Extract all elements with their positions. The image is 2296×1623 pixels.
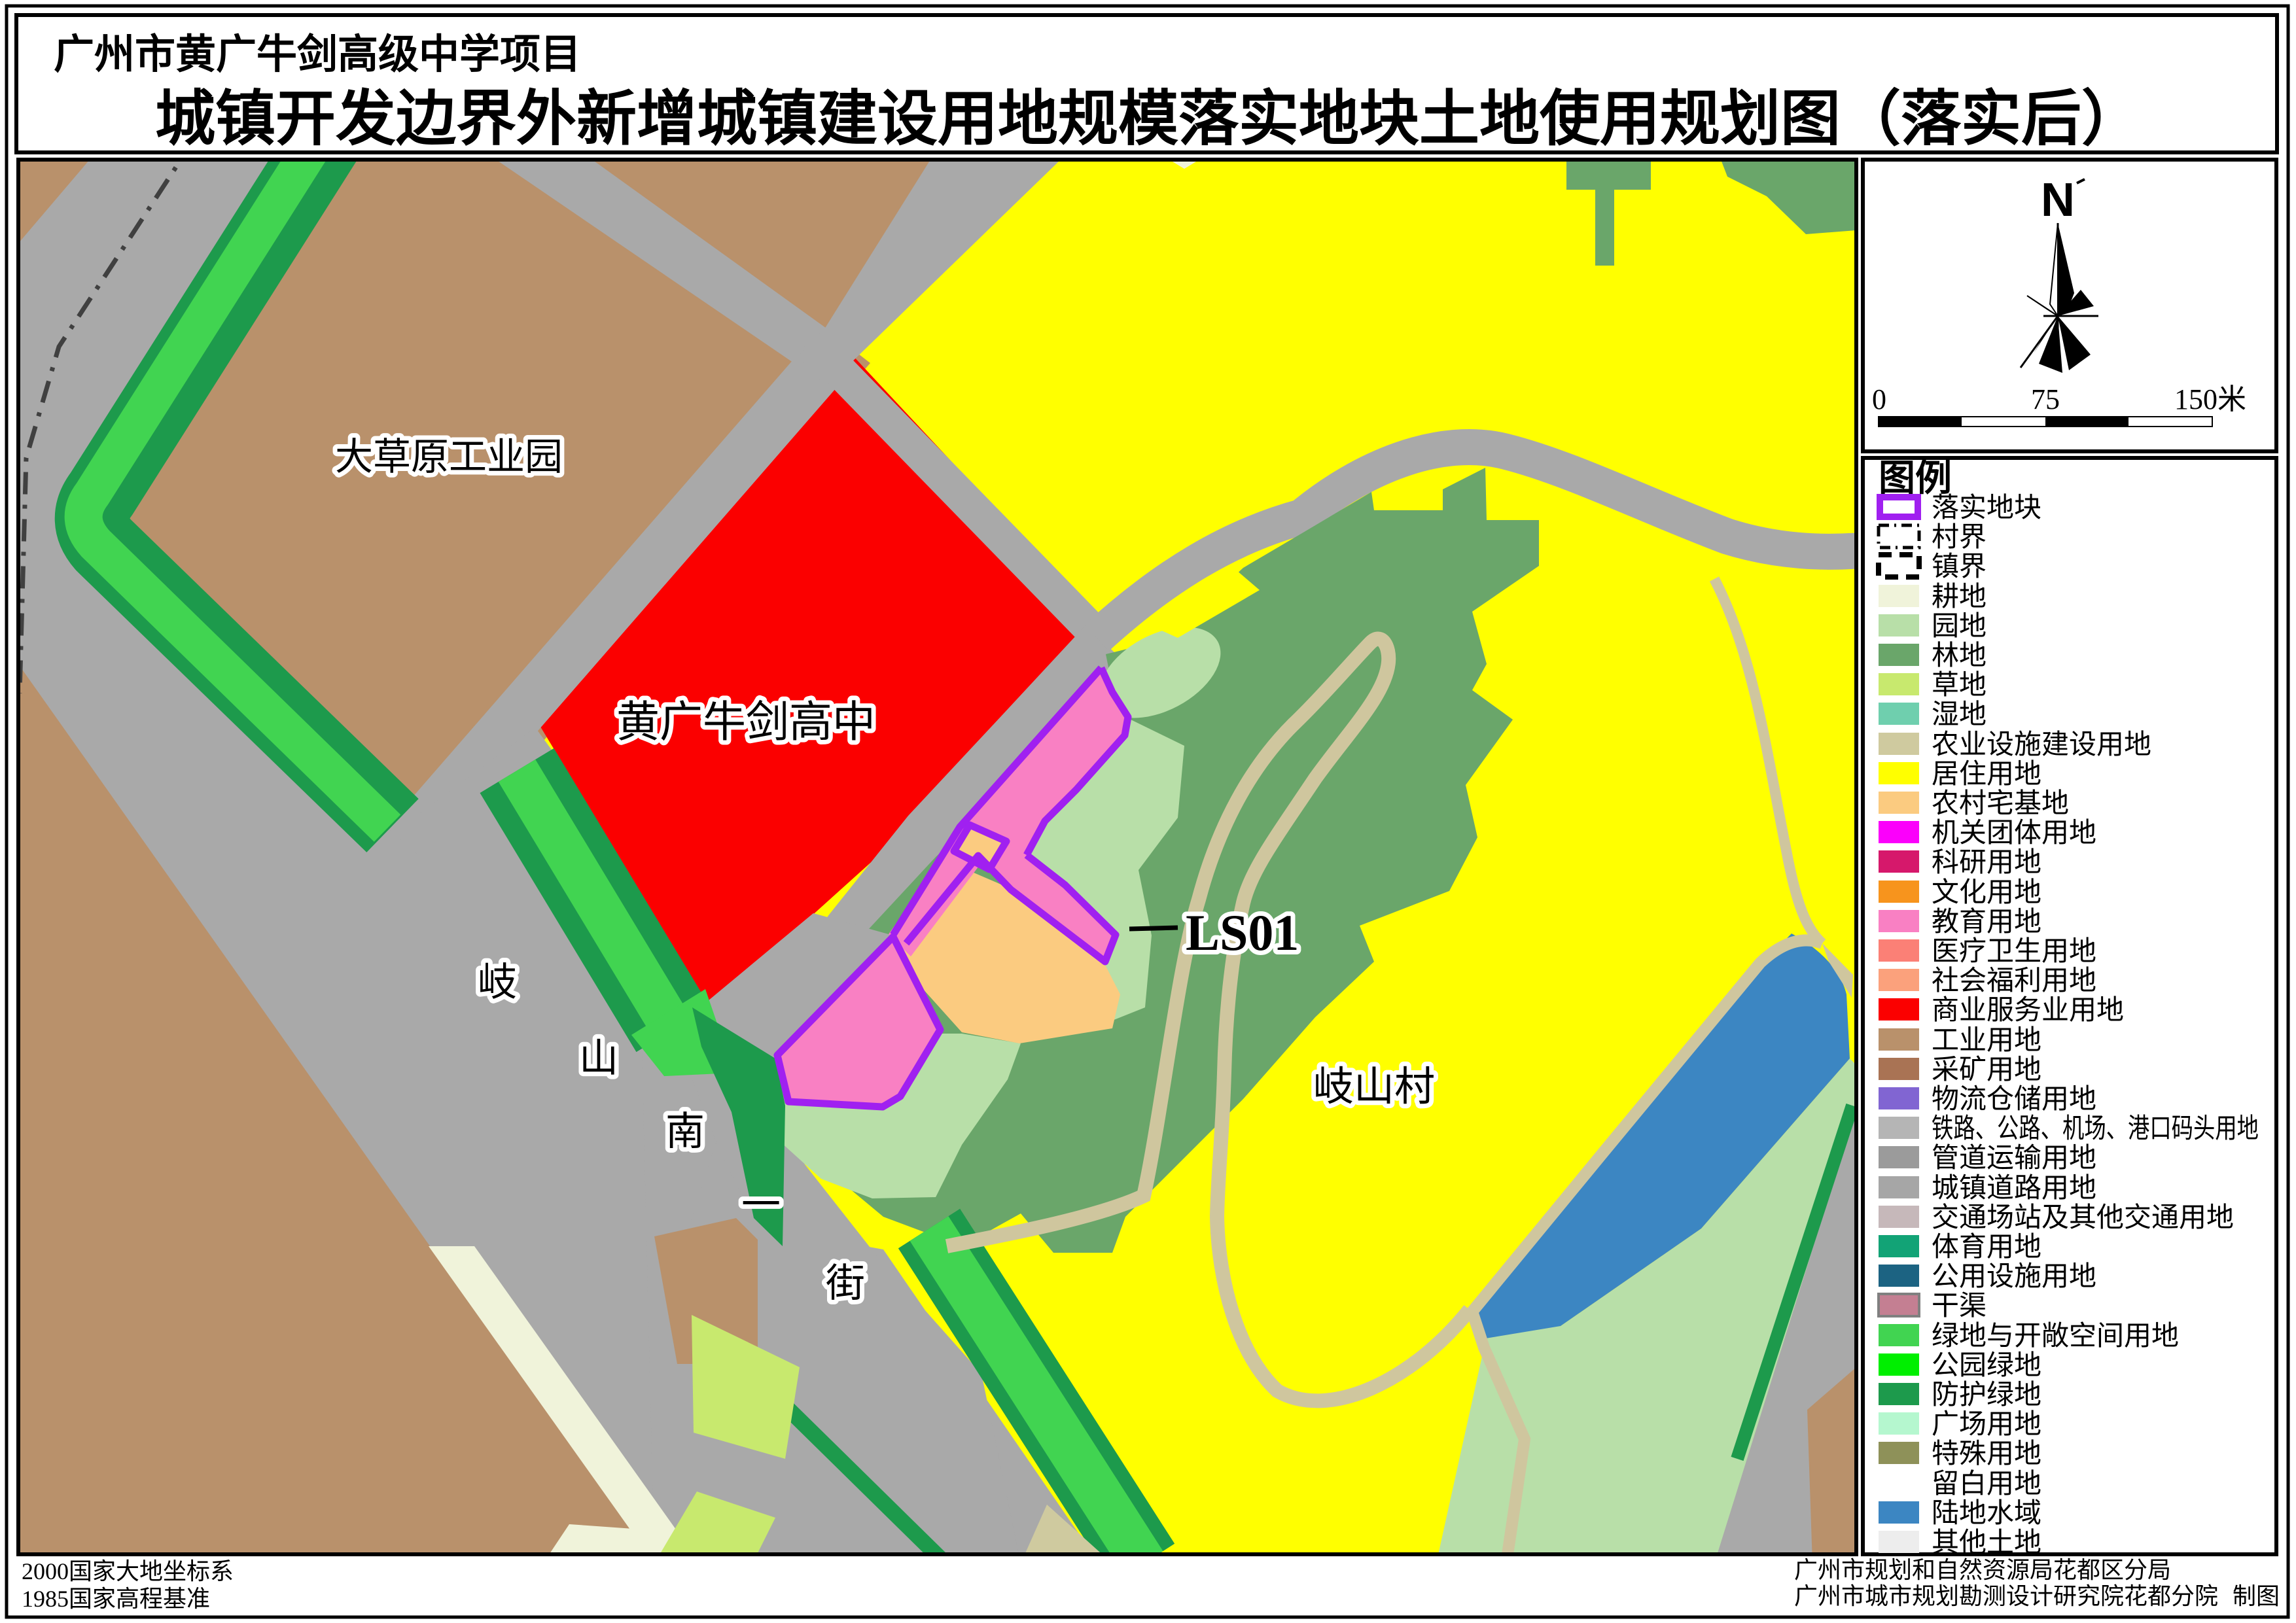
svg-text:城镇开发边界外新增城镇建设用地规模落实地块土地使用规划图（落: 城镇开发边界外新增城镇建设用地规模落实地块土地使用规划图（落实后） — [155, 86, 2142, 152]
svg-text:体育用地: 体育用地 — [1932, 1232, 2041, 1263]
svg-text:防护绿地: 防护绿地 — [1932, 1380, 2041, 1410]
svg-text:草地: 草地 — [1932, 671, 1987, 701]
svg-text:山: 山 — [579, 1037, 618, 1080]
svg-text:村界: 村界 — [1932, 523, 1987, 553]
svg-text:广场用地: 广场用地 — [1932, 1410, 2041, 1440]
svg-text:林地: 林地 — [1932, 641, 1987, 671]
svg-text:农业设施建设用地: 农业设施建设用地 — [1932, 730, 2151, 760]
svg-text:教育用地: 教育用地 — [1932, 907, 2041, 937]
svg-text:公用设施用地: 公用设施用地 — [1932, 1262, 2096, 1292]
svg-text:广州市城市规划勘测设计研究院花都分院: 广州市城市规划勘测设计研究院花都分院 — [1794, 1583, 2218, 1609]
svg-text:园地: 园地 — [1932, 612, 1987, 642]
svg-text:机关团体用地: 机关团体用地 — [1932, 818, 2096, 848]
svg-text:街: 街 — [826, 1262, 865, 1305]
svg-text:交通场站及其他交通用地: 交通场站及其他交通用地 — [1932, 1202, 2234, 1233]
svg-text:LS01: LS01 — [1186, 904, 1299, 961]
svg-text:一: 一 — [741, 1183, 781, 1227]
svg-text:绿地与开敞空间用地: 绿地与开敞空间用地 — [1932, 1321, 2179, 1352]
svg-text:干渠: 干渠 — [1932, 1291, 1987, 1321]
svg-text:2000国家大地坐标系: 2000国家大地坐标系 — [22, 1558, 234, 1584]
svg-text:铁路、公路、机场、港口码头用地: 铁路、公路、机场、港口码头用地 — [1932, 1114, 2259, 1144]
svg-text:广州市规划和自然资源局花都区分局: 广州市规划和自然资源局花都区分局 — [1794, 1557, 2171, 1583]
svg-text:N: N — [2041, 174, 2075, 226]
svg-text:岐山村: 岐山村 — [1313, 1065, 1435, 1109]
svg-text:物流仓储用地: 物流仓储用地 — [1932, 1085, 2096, 1115]
svg-text:医疗卫生用地: 医疗卫生用地 — [1932, 937, 2096, 967]
svg-text:采矿用地: 采矿用地 — [1932, 1055, 2041, 1085]
svg-text:制图: 制图 — [2233, 1583, 2280, 1609]
svg-text:留白用地: 留白用地 — [1932, 1469, 2041, 1499]
svg-text:1985国家高程基准: 1985国家高程基准 — [22, 1586, 210, 1612]
svg-text:工业用地: 工业用地 — [1932, 1026, 2041, 1056]
svg-text:科研用地: 科研用地 — [1932, 848, 2041, 878]
svg-text:公园绿地: 公园绿地 — [1932, 1351, 2041, 1381]
svg-text:耕地: 耕地 — [1932, 582, 1987, 612]
svg-text:管道运输用地: 管道运输用地 — [1932, 1143, 2096, 1174]
svg-text:黄广牛剑高中: 黄广牛剑高中 — [616, 699, 875, 746]
svg-text:陆地水域: 陆地水域 — [1932, 1499, 2041, 1529]
svg-text:文化用地: 文化用地 — [1932, 877, 2041, 908]
svg-text:商业服务业用地: 商业服务业用地 — [1932, 996, 2124, 1026]
svg-text:湿地: 湿地 — [1932, 700, 1987, 730]
svg-text:落实地块: 落实地块 — [1932, 493, 2041, 523]
svg-text:南: 南 — [665, 1110, 705, 1153]
svg-text:其他土地: 其他土地 — [1932, 1528, 2041, 1558]
svg-text:农村宅基地: 农村宅基地 — [1932, 788, 2069, 819]
svg-text:广州市黄广牛剑高级中学项目: 广州市黄广牛剑高级中学项目 — [54, 32, 581, 77]
svg-text:岐: 岐 — [478, 961, 517, 1004]
svg-text:大草原工业园: 大草原工业园 — [335, 436, 563, 478]
svg-text:0: 0 — [1872, 383, 1886, 415]
svg-text:居住用地: 居住用地 — [1932, 759, 2041, 790]
svg-text:镇界: 镇界 — [1932, 552, 1987, 582]
svg-text:75: 75 — [2031, 383, 2060, 415]
svg-text:150米: 150米 — [2174, 383, 2246, 415]
svg-text:社会福利用地: 社会福利用地 — [1932, 966, 2096, 996]
svg-text:图例: 图例 — [1879, 457, 1952, 498]
svg-text:城镇道路用地: 城镇道路用地 — [1932, 1174, 2096, 1204]
svg-text:特殊用地: 特殊用地 — [1932, 1439, 2041, 1469]
